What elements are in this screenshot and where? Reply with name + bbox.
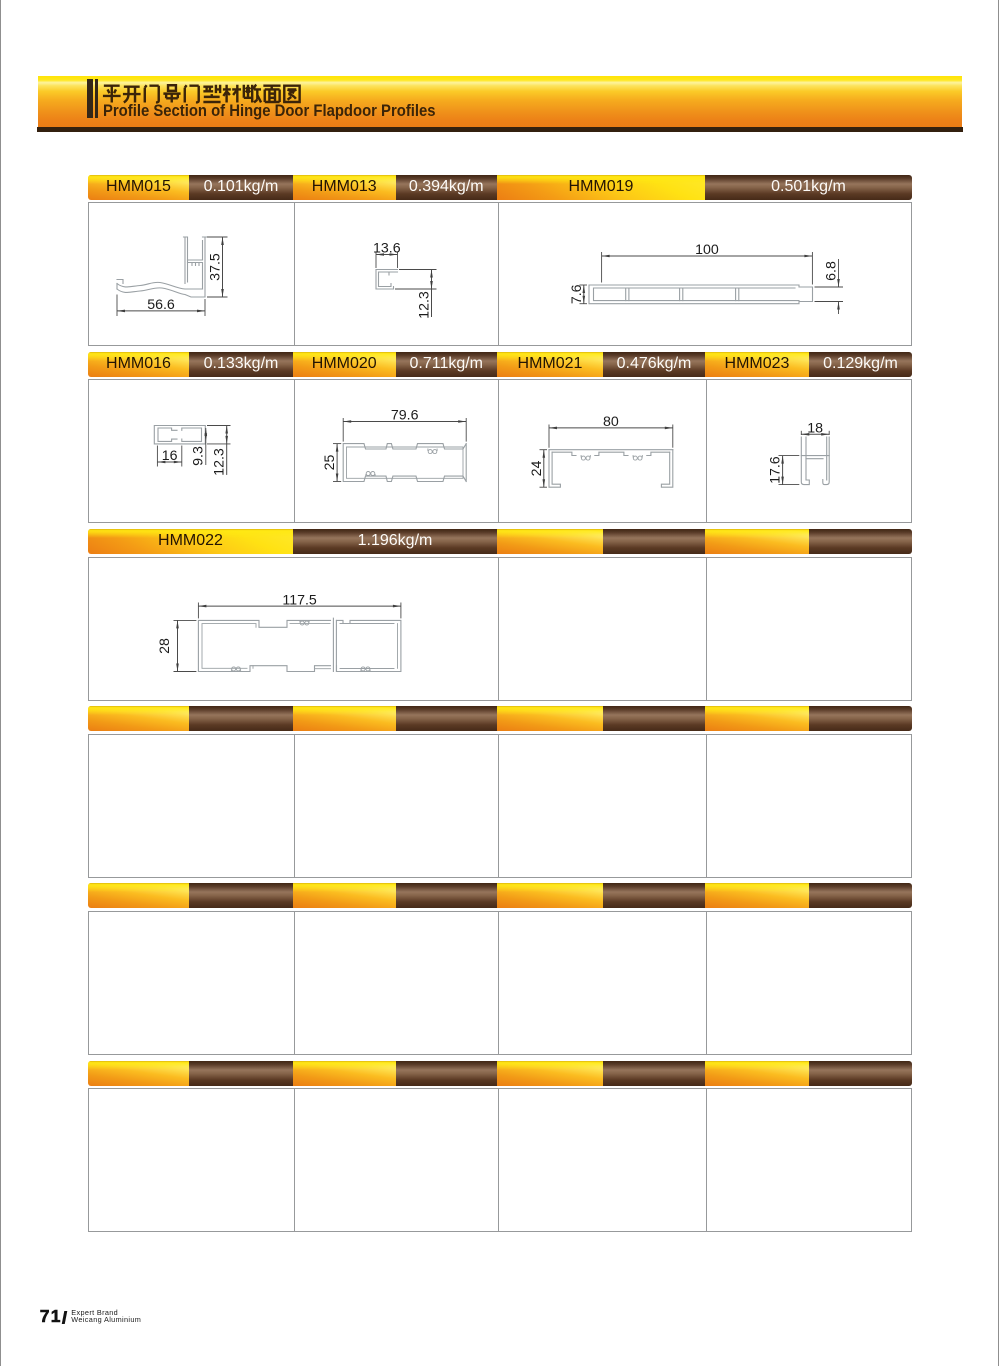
svg-text:9.3: 9.3 — [191, 446, 207, 466]
svg-text:12.3: 12.3 — [212, 448, 228, 476]
svg-text:28: 28 — [157, 638, 173, 654]
svg-text:117.5: 117.5 — [282, 592, 317, 608]
svg-text:24: 24 — [529, 461, 545, 477]
svg-text:16: 16 — [162, 448, 178, 464]
svg-text:13.6: 13.6 — [373, 241, 401, 257]
svg-text:12.3: 12.3 — [417, 291, 433, 319]
svg-text:25: 25 — [322, 455, 338, 471]
svg-text:6.8: 6.8 — [824, 261, 840, 281]
svg-text:18: 18 — [807, 421, 823, 437]
svg-text:100: 100 — [695, 242, 719, 258]
svg-text:7.6: 7.6 — [569, 284, 585, 304]
svg-text:80: 80 — [603, 414, 619, 430]
svg-text:37.5: 37.5 — [208, 253, 224, 281]
svg-text:17.6: 17.6 — [768, 456, 784, 484]
svg-text:79.6: 79.6 — [391, 408, 419, 424]
svg-text:56.6: 56.6 — [147, 297, 175, 313]
